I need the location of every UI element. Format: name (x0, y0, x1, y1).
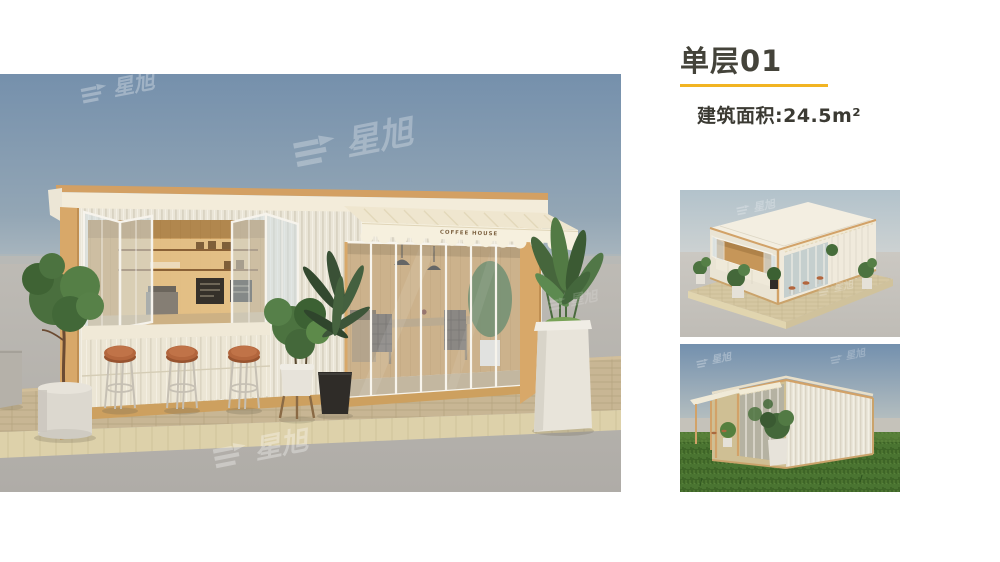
coffee-house-scene: COFFEE HOUSE (0, 74, 621, 492)
cups-row (150, 262, 180, 268)
concrete-planter-left (0, 350, 22, 408)
white-planter-box (768, 438, 788, 466)
glass-facade (346, 242, 520, 407)
menu-board (196, 278, 224, 304)
title-underline (680, 84, 828, 87)
stool (721, 430, 726, 432)
area-label: 建筑面积:24.5m² (697, 101, 861, 128)
thumbnail-scene-gray (680, 190, 900, 337)
thumbnail-view-top: 星旭 星旭 (680, 190, 900, 337)
thumbnail-scene-grass (680, 344, 900, 492)
white-planter-box (534, 320, 592, 432)
stool (711, 432, 716, 434)
main-render-image: COFFEE HOUSE (0, 74, 621, 492)
white-pot (38, 382, 92, 439)
thumbnail-view-bottom: 星旭 星旭 (680, 344, 900, 492)
page-title: 单层01 (680, 38, 782, 80)
catalog-page: COFFEE HOUSE (0, 0, 1000, 562)
